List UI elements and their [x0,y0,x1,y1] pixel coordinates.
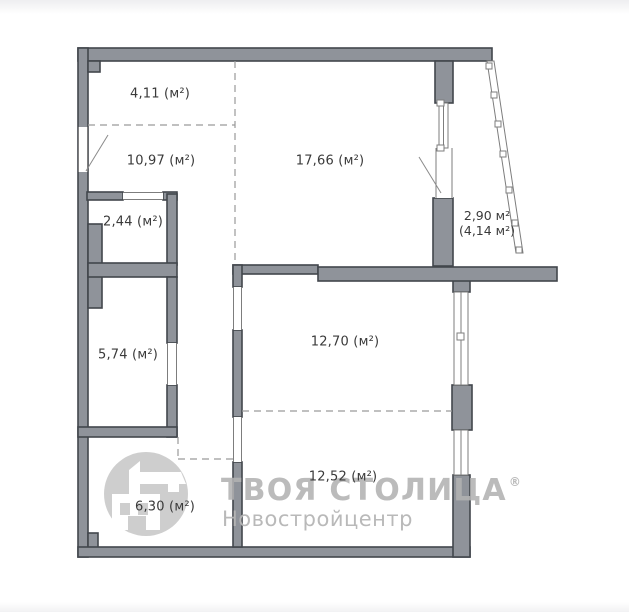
room-label-kitchen: 5,74 (м²) [98,348,158,363]
room-label-bathroom: 2,44 (м²) [103,215,163,230]
balcony-area-line2: (4,14 м²) [459,223,515,238]
room-label-room-6-30: 6,30 (м²) [135,500,195,515]
room-label-living-room: 17,66 (м²) [296,154,365,169]
floorplan-canvas: ТВОЯ СТОЛИЦА® Новостройцентр 4,11 (м²) 1… [0,0,629,612]
dashed-dividers [88,61,452,459]
room-label-bedroom-1: 12,70 (м²) [311,335,380,350]
room-label-bedroom-2: 12,52 (м²) [309,470,378,485]
room-label-balcony: 2,90 м² (4,14 м²) [459,208,515,238]
door-openings [78,127,453,462]
room-label-entry-upper: 4,11 (м²) [130,87,190,102]
floorplan-drawing [0,0,629,612]
balcony-area-line1: 2,90 м² [459,208,515,223]
room-label-hallway: 10,97 (м²) [127,154,196,169]
